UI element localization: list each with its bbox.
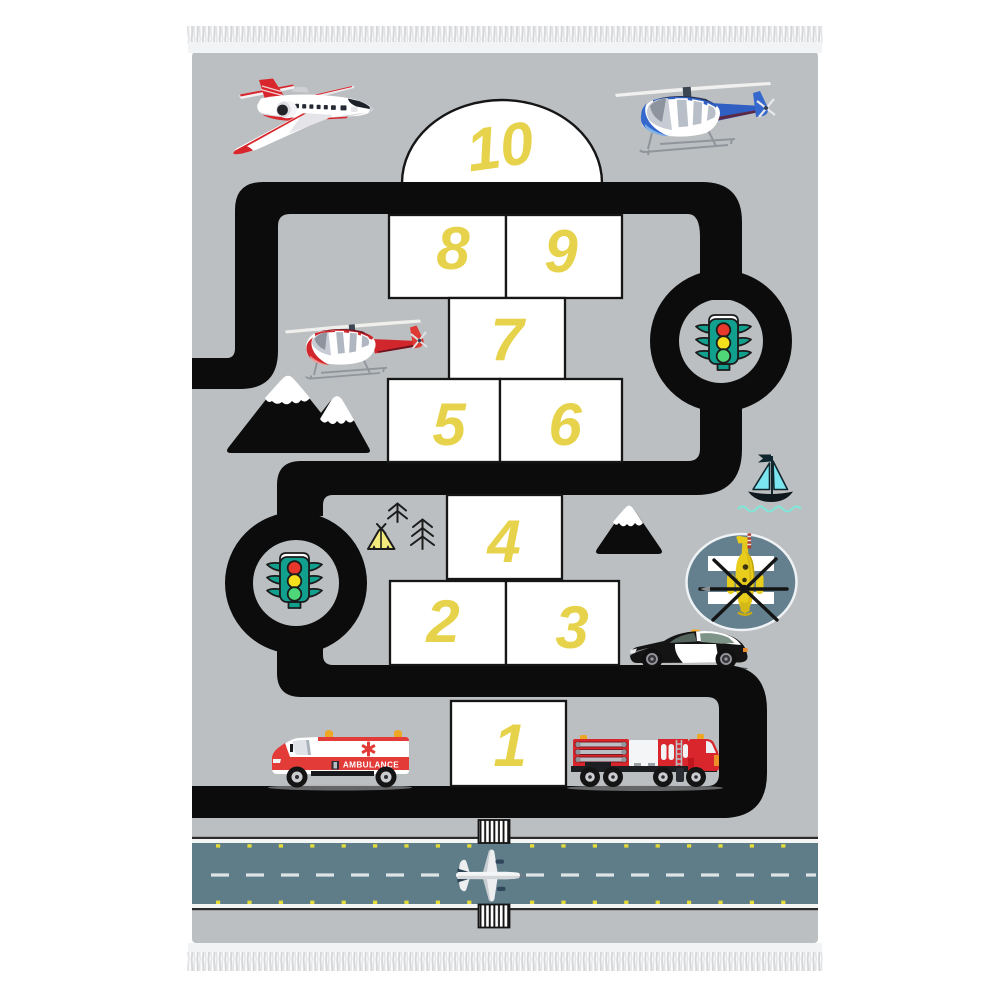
svg-text:8: 8 — [436, 215, 470, 282]
svg-text:7: 7 — [490, 306, 526, 373]
svg-text:4: 4 — [486, 508, 520, 575]
svg-text:3: 3 — [555, 594, 588, 661]
svg-text:5: 5 — [432, 391, 467, 458]
svg-text:2: 2 — [425, 588, 459, 655]
svg-text:1: 1 — [493, 712, 526, 779]
svg-text:10: 10 — [462, 109, 537, 185]
svg-text:6: 6 — [548, 391, 582, 458]
svg-text:9: 9 — [544, 218, 578, 285]
